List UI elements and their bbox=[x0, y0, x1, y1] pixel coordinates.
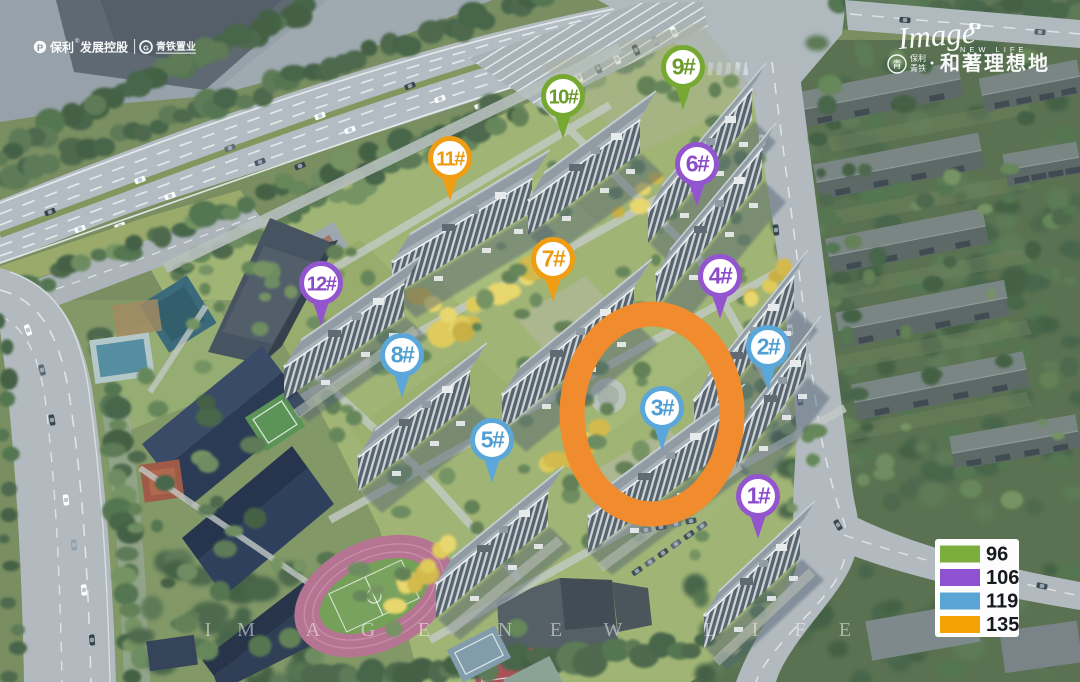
svg-text:1#: 1# bbox=[747, 483, 771, 509]
svg-text:保利: 保利 bbox=[49, 40, 74, 55]
svg-text:3#: 3# bbox=[651, 395, 675, 421]
svg-text:7#: 7# bbox=[542, 246, 566, 272]
svg-text:保利: 保利 bbox=[910, 53, 926, 63]
svg-text:青铁置业: 青铁置业 bbox=[156, 40, 196, 53]
svg-text:8#: 8# bbox=[391, 342, 415, 368]
svg-text:青: 青 bbox=[892, 58, 902, 71]
svg-text:5#: 5# bbox=[481, 427, 505, 453]
svg-text:6#: 6# bbox=[686, 151, 710, 177]
svg-text:96: 96 bbox=[986, 544, 1008, 566]
svg-text:119: 119 bbox=[986, 591, 1018, 613]
svg-text:2#: 2# bbox=[757, 334, 781, 360]
svg-text:10#: 10# bbox=[549, 87, 579, 109]
svg-text:9#: 9# bbox=[672, 54, 696, 80]
svg-text:135: 135 bbox=[986, 614, 1019, 636]
svg-text:12#: 12# bbox=[307, 274, 337, 296]
svg-text:发展控股: 发展控股 bbox=[79, 40, 129, 55]
svg-text:11#: 11# bbox=[436, 149, 465, 171]
svg-text:106: 106 bbox=[986, 567, 1019, 589]
svg-text:4#: 4# bbox=[709, 263, 733, 289]
svg-text:和著理想地: 和著理想地 bbox=[940, 52, 1050, 75]
svg-text:G: G bbox=[143, 44, 149, 53]
svg-text:P: P bbox=[37, 43, 44, 54]
svg-text:青铁: 青铁 bbox=[910, 63, 926, 73]
